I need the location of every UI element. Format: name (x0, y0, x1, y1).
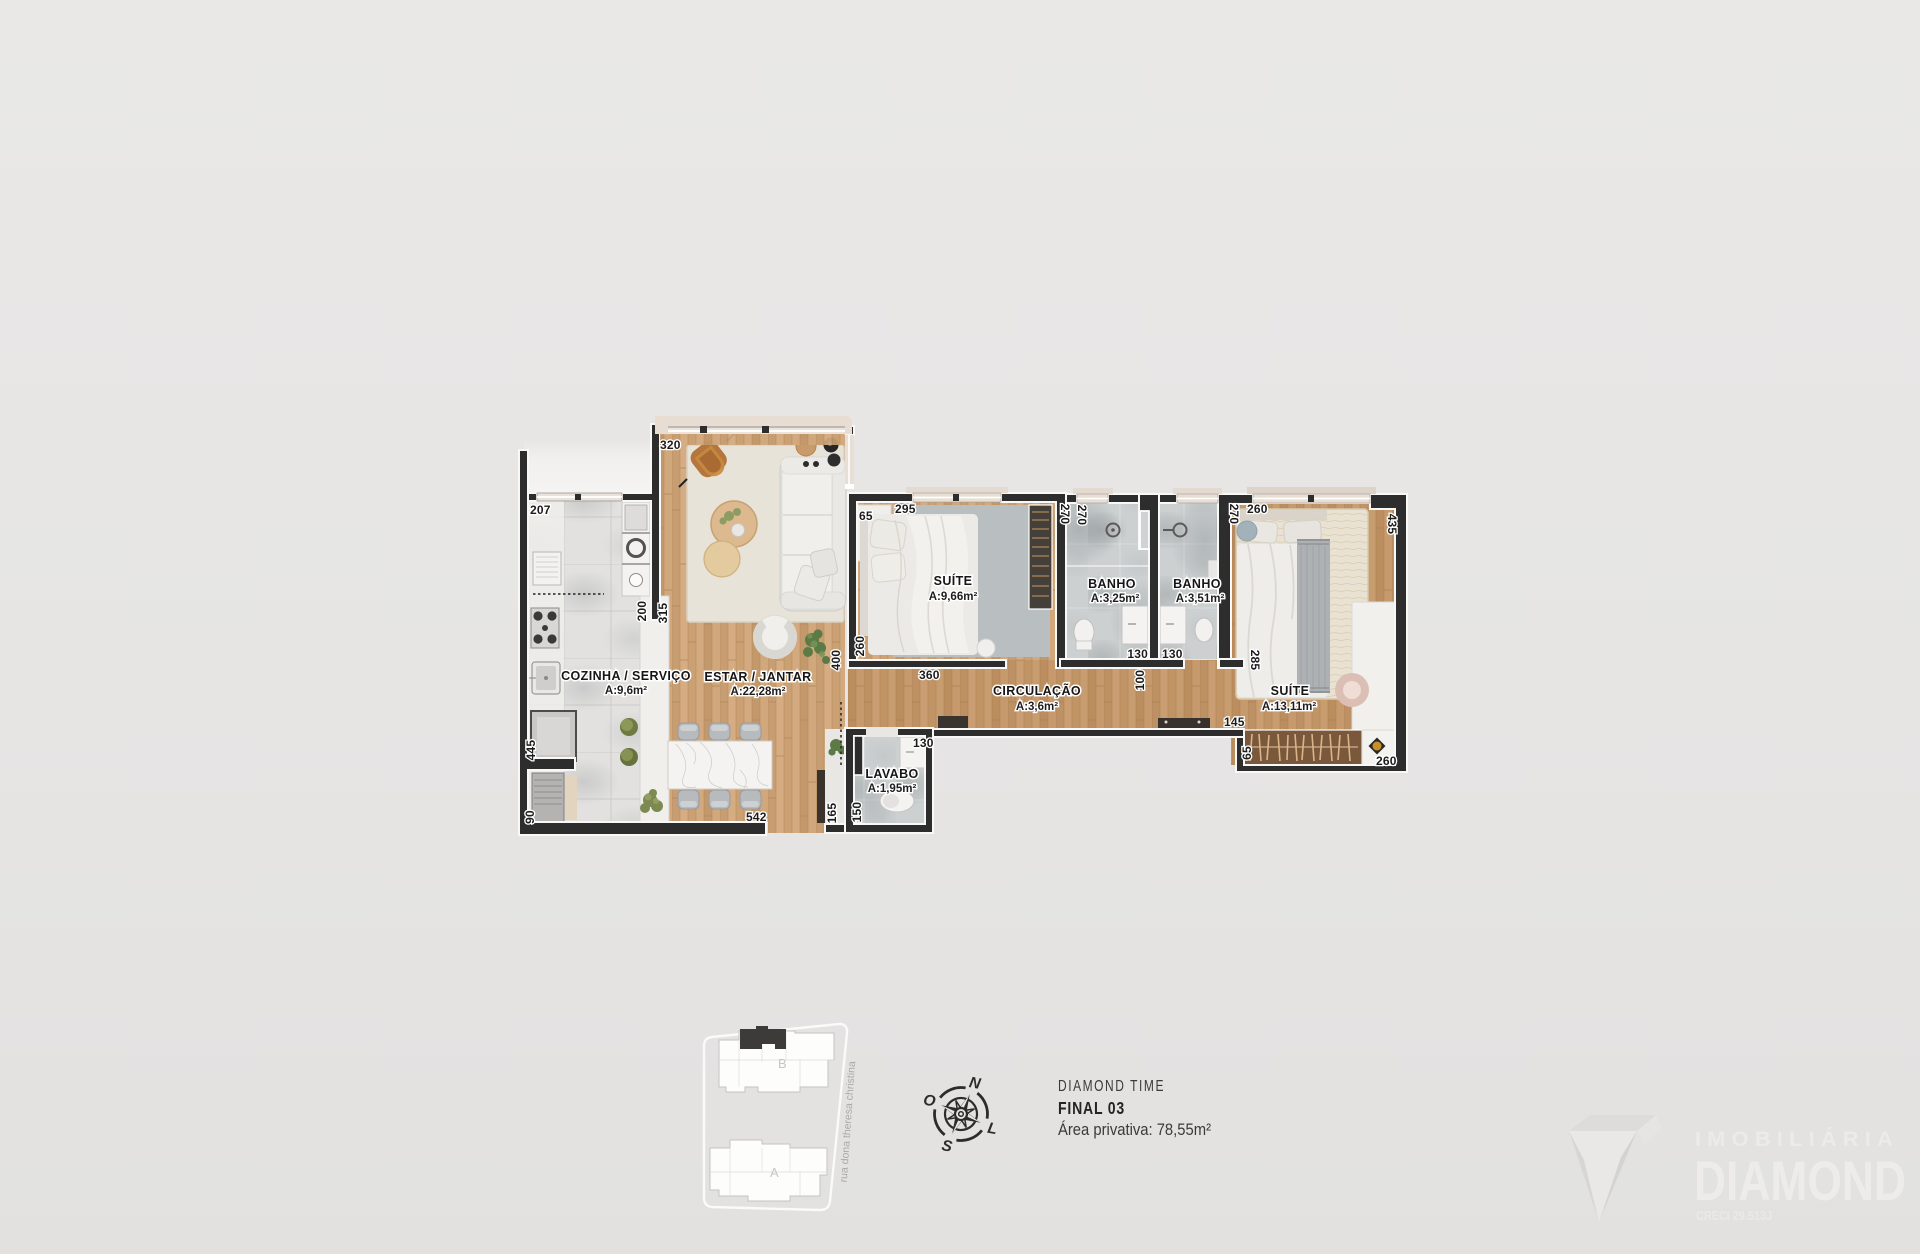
svg-text:295: 295 (895, 502, 916, 516)
svg-text:130: 130 (1127, 647, 1148, 661)
svg-text:270: 270 (1075, 505, 1089, 526)
svg-text:65: 65 (1240, 746, 1254, 760)
svg-text:A:3,6m²: A:3,6m² (1016, 701, 1058, 713)
svg-text:BANHO: BANHO (1173, 577, 1221, 591)
svg-text:A:9,66m²: A:9,66m² (929, 591, 978, 603)
svg-text:542: 542 (746, 810, 767, 824)
svg-text:SUÍTE: SUÍTE (934, 573, 973, 588)
svg-text:COZINHA / SERVIÇO: COZINHA / SERVIÇO (561, 669, 691, 683)
svg-text:A:1,95m²: A:1,95m² (868, 783, 917, 795)
svg-text:A:22,28m²: A:22,28m² (731, 686, 786, 698)
svg-text:BANHO: BANHO (1088, 577, 1136, 591)
svg-text:260: 260 (1247, 502, 1268, 516)
svg-text:DIAMOND: DIAMOND (1694, 1149, 1906, 1212)
svg-text:SUÍTE: SUÍTE (1271, 683, 1310, 698)
svg-text:90: 90 (523, 810, 537, 824)
svg-text:B: B (778, 1056, 787, 1071)
svg-text:320: 320 (660, 438, 681, 452)
svg-text:207: 207 (530, 503, 551, 517)
svg-text:145: 145 (1224, 715, 1245, 729)
svg-text:IMOBILIÁRIA: IMOBILIÁRIA (1695, 1128, 1899, 1151)
svg-text:360: 360 (919, 668, 940, 682)
svg-text:270: 270 (1058, 504, 1072, 525)
svg-text:FINAL 03: FINAL 03 (1058, 1098, 1125, 1118)
svg-text:65: 65 (859, 509, 873, 523)
svg-text:A: A (770, 1165, 779, 1180)
svg-text:100: 100 (1133, 670, 1147, 691)
svg-text:A:3,51m²: A:3,51m² (1176, 593, 1225, 605)
svg-text:DIAMOND TIME: DIAMOND TIME (1058, 1078, 1165, 1095)
svg-text:165: 165 (825, 803, 839, 824)
svg-text:150: 150 (850, 802, 864, 823)
svg-text:285: 285 (1248, 650, 1262, 671)
svg-text:315: 315 (656, 603, 670, 624)
svg-text:CIRCULAÇÃO: CIRCULAÇÃO (993, 683, 1081, 698)
svg-text:CRECI 29.513J: CRECI 29.513J (1696, 1208, 1772, 1223)
svg-text:400: 400 (829, 650, 843, 671)
svg-text:A:9,6m²: A:9,6m² (605, 685, 647, 697)
svg-text:435: 435 (1385, 514, 1399, 535)
svg-text:Área privativa: 78,55m²: Área privativa: 78,55m² (1058, 1120, 1211, 1139)
svg-text:130: 130 (1162, 647, 1183, 661)
svg-text:ESTAR / JANTAR: ESTAR / JANTAR (704, 670, 811, 684)
svg-text:LAVABO: LAVABO (865, 767, 918, 781)
svg-text:200: 200 (635, 601, 649, 622)
svg-text:270: 270 (1227, 504, 1241, 525)
svg-text:A:13,11m²: A:13,11m² (1262, 701, 1317, 713)
svg-text:130: 130 (913, 736, 934, 750)
svg-text:A:3,25m²: A:3,25m² (1091, 593, 1140, 605)
svg-text:445: 445 (524, 740, 538, 761)
svg-text:260: 260 (853, 636, 867, 657)
svg-text:260: 260 (1376, 754, 1397, 768)
